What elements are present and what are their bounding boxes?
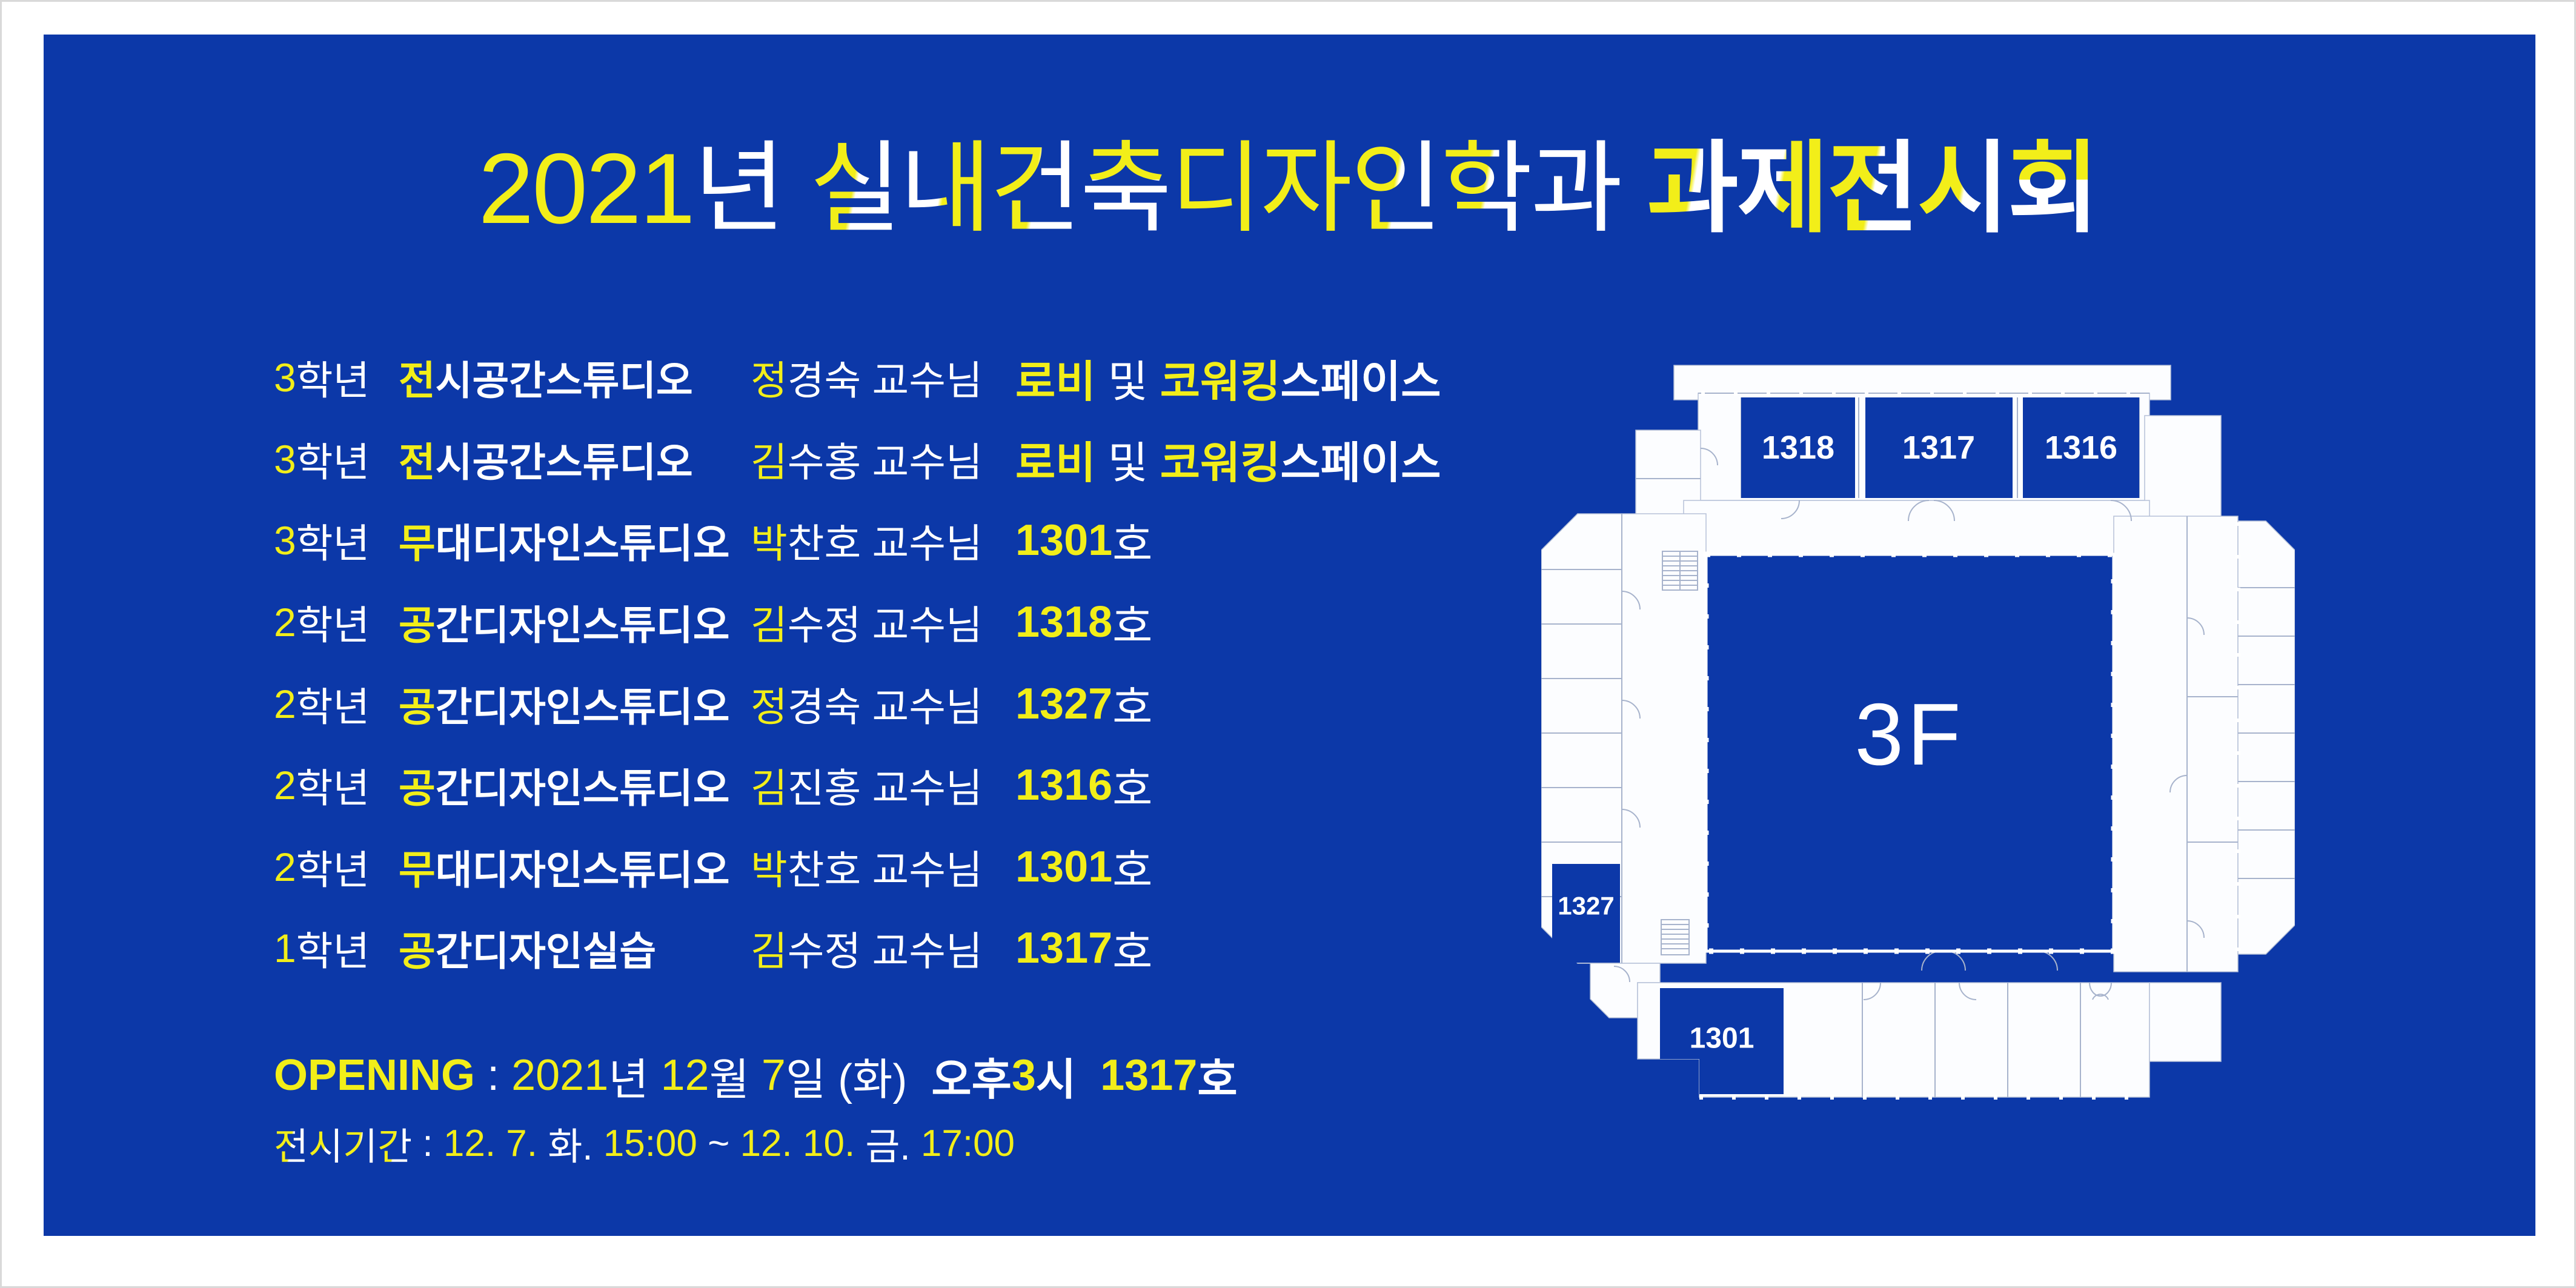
text-segment: 과 (1647, 133, 1737, 244)
professor-cell: 김진홍 교수님 (751, 745, 983, 826)
text-segment: 정 (751, 675, 788, 733)
text-segment: : (475, 1051, 511, 1100)
text-segment: 전 (399, 348, 436, 407)
text-segment: 1316 (1015, 760, 1112, 810)
text-segment: 학년 (296, 919, 370, 977)
text-segment: 일 (화) (786, 1044, 907, 1107)
text-segment: 찬호 교수님 (788, 511, 983, 569)
text-segment: ~ (697, 1122, 740, 1165)
text-segment: 호 (1197, 1044, 1237, 1107)
text-segment (1621, 133, 1647, 244)
text-segment: 건 (990, 133, 1080, 244)
grade-cell: 2학년 (274, 663, 370, 745)
text-segment: 시 (1917, 133, 2008, 244)
text-segment: 김 (751, 430, 788, 488)
schedule-row: 3학년 전시공간스튜디오 김수홍 교수님 로비 및 코워킹스페이스 (274, 419, 1486, 500)
studio-cell: 무대디자인스튜디오 (399, 826, 730, 908)
text-segment: 무 (399, 511, 436, 569)
text-segment: 2021 (511, 1051, 608, 1100)
text-segment: 학년 (296, 838, 370, 896)
room-label-1316: 1316 (2045, 430, 2117, 466)
room-label-1327: 1327 (1558, 892, 1614, 920)
schedule-row: 2학년 공간디자인스튜디오 김수정 교수님 1318호 (274, 582, 1486, 663)
text-segment: 시 (308, 1116, 343, 1170)
text-segment: 수정 교수님 (788, 919, 983, 977)
text-segment: 년 (694, 133, 784, 244)
text-segment (1076, 1051, 1100, 1100)
text-segment: 1318 (1015, 597, 1112, 647)
text-segment: 전 (1827, 133, 1917, 244)
text-segment: 화. (548, 1116, 603, 1170)
text-segment: 과 (1531, 133, 1621, 244)
schedule-row: 2학년 공간디자인스튜디오 김진홍 교수님 1316호 (274, 745, 1486, 826)
room-label-1301: 1301 (1690, 1023, 1754, 1055)
text-segment (783, 133, 809, 244)
text-segment: 무 (399, 838, 436, 896)
text-segment: 코워킹 (1160, 427, 1281, 491)
text-segment: 학년 (296, 511, 370, 569)
text-segment: 진홍 교수님 (788, 756, 983, 814)
schedule-row: 3학년 무대디자인스튜디오 박찬호 교수님 1301호 (274, 500, 1486, 582)
grade-cell: 2학년 (274, 745, 370, 826)
text-segment: 시공간스튜디오 (436, 430, 693, 488)
text-segment: 경숙 교수님 (788, 348, 983, 407)
opening-info-line: OPENING : 2021년 12월 7일 (화) 오후3시 1317호 (274, 1043, 1238, 1107)
text-segment: 인 (1350, 133, 1441, 244)
text-segment: 15:00 (603, 1122, 697, 1165)
text-segment: 찬호 교수님 (788, 838, 983, 896)
text-segment: 김 (751, 593, 788, 651)
text-segment: 1301 (1015, 516, 1112, 565)
text-segment: 실 (809, 133, 900, 244)
schedule-row: 2학년 무대디자인스튜디오 박찬호 교수님 1301호 (274, 826, 1486, 908)
grade-cell: 3학년 (274, 500, 370, 582)
studio-cell: 전시공간스튜디오 (399, 419, 693, 500)
studio-cell: 공간디자인실습 (399, 908, 656, 989)
text-segment: OPENING (274, 1051, 475, 1100)
location-cell: 1316호 (1015, 745, 1152, 826)
poster-page: 2021년 실내건축디자인학과 과제전시회 3학년 전시공간스튜디오 정경숙 교… (0, 0, 2576, 1288)
location-cell: 로비 및 코워킹스페이스 (1015, 419, 1441, 500)
studio-cell: 전시공간스튜디오 (399, 337, 693, 419)
schedule-row: 2학년 공간디자인스튜디오 정경숙 교수님 1327호 (274, 663, 1486, 745)
text-segment: 1317 (1015, 923, 1112, 973)
text-segment: 및 (1095, 346, 1160, 410)
text-segment: 박 (751, 511, 788, 569)
text-segment: 수홍 교수님 (788, 430, 983, 488)
text-segment: 대디자인스튜디오 (436, 838, 730, 896)
text-segment: 2 (274, 681, 296, 727)
text-segment: 학년 (296, 675, 370, 733)
text-segment (907, 1051, 931, 1100)
text-segment: 회 (2008, 133, 2098, 244)
text-segment: 간디자인스튜디오 (436, 756, 730, 814)
text-segment: 3 (274, 517, 296, 563)
schedule-row: 3학년 전시공간스튜디오 정경숙 교수님 로비 및 코워킹스페이스 (274, 337, 1486, 419)
text-segment: 1 (274, 925, 296, 971)
text-segment: 오후 (931, 1044, 1011, 1107)
professor-cell: 김수정 교수님 (751, 908, 983, 989)
text-segment: : (412, 1122, 443, 1165)
text-segment: 간디자인스튜디오 (436, 675, 730, 733)
text-segment: 공 (399, 919, 436, 977)
text-segment: 수정 교수님 (788, 593, 983, 651)
text-segment: 김 (751, 919, 788, 977)
text-segment: 12. 10. (740, 1122, 866, 1165)
text-segment: 3 (274, 436, 296, 482)
text-segment: 호 (1112, 835, 1152, 898)
text-segment: 및 (1095, 427, 1160, 491)
text-segment: 학년 (296, 756, 370, 814)
text-segment: 호 (1112, 754, 1152, 817)
text-segment: 학 (1441, 133, 1531, 244)
studio-cell: 공간디자인스튜디오 (399, 745, 730, 826)
text-segment: 2 (274, 762, 296, 808)
room-label-1317: 1317 (1902, 430, 1975, 466)
text-segment: 학년 (296, 348, 370, 407)
text-segment: 공 (399, 675, 436, 733)
text-segment: 간디자인실습 (436, 919, 656, 977)
text-segment: 자 (1260, 133, 1350, 244)
professor-cell: 정경숙 교수님 (751, 337, 983, 419)
grade-cell: 3학년 (274, 419, 370, 500)
studio-cell: 무대디자인스튜디오 (399, 500, 730, 582)
text-segment: 2 (274, 844, 296, 890)
professor-cell: 박찬호 교수님 (751, 500, 983, 582)
room-label-1318: 1318 (1762, 430, 1834, 466)
text-segment: 7 (762, 1051, 786, 1100)
text-segment: 17:00 (921, 1122, 1015, 1165)
schedule-row: 1학년 공간디자인실습 김수정 교수님 1317호 (274, 908, 1486, 989)
text-segment: 기 (343, 1116, 377, 1170)
text-segment: 로비 (1015, 427, 1095, 491)
text-segment: 스페이스 (1280, 427, 1441, 491)
text-segment: 박 (751, 838, 788, 896)
professor-cell: 박찬호 교수님 (751, 826, 983, 908)
grade-cell: 1학년 (274, 908, 370, 989)
text-segment: 년 (608, 1044, 660, 1107)
location-cell: 1317호 (1015, 908, 1152, 989)
text-segment: 12. 7. (443, 1122, 548, 1165)
text-segment: 3 (274, 354, 296, 400)
text-segment: 전 (399, 430, 436, 488)
professor-cell: 김수정 교수님 (751, 582, 983, 663)
text-segment: 2 (274, 599, 296, 645)
text-segment: 학년 (296, 430, 370, 488)
text-segment: 대디자인스튜디오 (436, 511, 730, 569)
grade-cell: 2학년 (274, 826, 370, 908)
poster-title: 2021년 실내건축디자인학과 과제전시회 (0, 128, 2576, 248)
location-cell: 1301호 (1015, 500, 1152, 582)
text-segment: 디 (1170, 133, 1261, 244)
text-segment: 3 (1012, 1051, 1036, 1100)
text-segment: 내 (900, 133, 990, 244)
location-cell: 1318호 (1015, 582, 1152, 663)
text-segment: 1327 (1015, 679, 1112, 729)
floor-plan: 1318 1317 1316 1327 1301 3F (1541, 357, 2295, 1104)
exhibition-period-line: 전시기간 : 12. 7. 화. 15:00 ~ 12. 10. 금. 17:0… (274, 1115, 1015, 1172)
text-segment: 로비 (1015, 346, 1095, 410)
text-segment: 공 (399, 593, 436, 651)
text-segment: 경숙 교수님 (788, 675, 983, 733)
floor-level-label: 3F (1854, 685, 1964, 783)
text-segment: 시공간스튜디오 (436, 348, 693, 407)
text-segment: 1301 (1015, 842, 1112, 892)
text-segment: 월 (709, 1044, 762, 1107)
text-segment: 정 (751, 348, 788, 407)
location-cell: 1327호 (1015, 663, 1152, 745)
text-segment: 호 (1112, 509, 1152, 573)
text-segment: 금. (865, 1116, 921, 1170)
floor-plan-drawing: 1318 1317 1316 1327 1301 3F (1541, 357, 2295, 1104)
text-segment: 김 (751, 756, 788, 814)
text-segment: 2021 (479, 133, 694, 244)
text-segment: 축 (1080, 133, 1170, 244)
text-segment: 간디자인스튜디오 (436, 593, 730, 651)
text-segment: 호 (1112, 591, 1152, 654)
text-segment: 12 (661, 1051, 709, 1100)
text-segment: 제 (1737, 133, 1827, 244)
schedule-list: 3학년 전시공간스튜디오 정경숙 교수님 로비 및 코워킹스페이스 3학년 전시… (274, 337, 1486, 989)
text-segment: 공 (399, 756, 436, 814)
text-segment: 간 (377, 1116, 412, 1170)
location-cell: 로비 및 코워킹스페이스 (1015, 337, 1441, 419)
text-segment: 호 (1112, 672, 1152, 735)
text-segment: 호 (1112, 917, 1152, 980)
grade-cell: 3학년 (274, 337, 370, 419)
text-segment: 전 (274, 1116, 308, 1170)
text-segment: 시 (1036, 1044, 1076, 1107)
text-segment: 학년 (296, 593, 370, 651)
location-cell: 1301호 (1015, 826, 1152, 908)
studio-cell: 공간디자인스튜디오 (399, 663, 730, 745)
grade-cell: 2학년 (274, 582, 370, 663)
professor-cell: 정경숙 교수님 (751, 663, 983, 745)
text-segment: 1317 (1100, 1051, 1197, 1100)
studio-cell: 공간디자인스튜디오 (399, 582, 730, 663)
text-segment: 코워킹 (1160, 346, 1281, 410)
text-segment: 스페이스 (1280, 346, 1441, 410)
professor-cell: 김수홍 교수님 (751, 419, 983, 500)
